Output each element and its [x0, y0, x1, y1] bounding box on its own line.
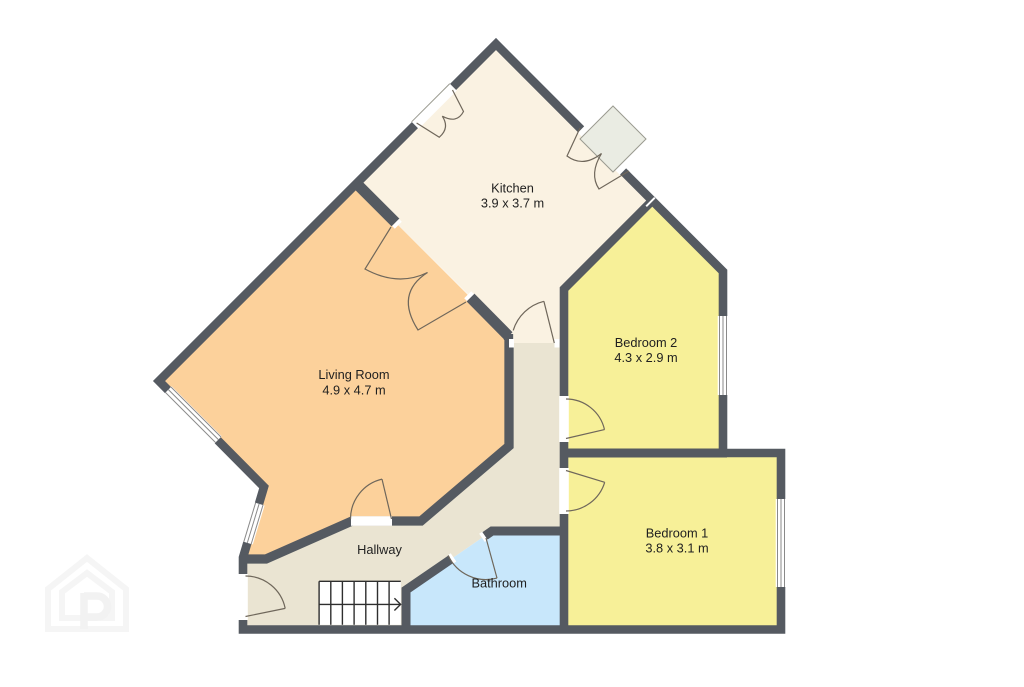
svg-text:3.8 x 3.1 m: 3.8 x 3.1 m: [645, 540, 708, 555]
svg-text:Bathroom: Bathroom: [471, 575, 526, 590]
svg-text:Kitchen: Kitchen: [491, 181, 534, 196]
svg-text:4.3 x 2.9 m: 4.3 x 2.9 m: [614, 350, 677, 365]
svg-text:Living Room: Living Room: [318, 367, 389, 382]
svg-text:3.9 x 3.7 m: 3.9 x 3.7 m: [481, 196, 544, 211]
svg-text:4.9 x 4.7 m: 4.9 x 4.7 m: [322, 383, 385, 398]
svg-text:Hallway: Hallway: [357, 542, 402, 557]
svg-text:Bedroom 2: Bedroom 2: [615, 335, 678, 350]
svg-text:Bedroom 1: Bedroom 1: [646, 526, 709, 541]
